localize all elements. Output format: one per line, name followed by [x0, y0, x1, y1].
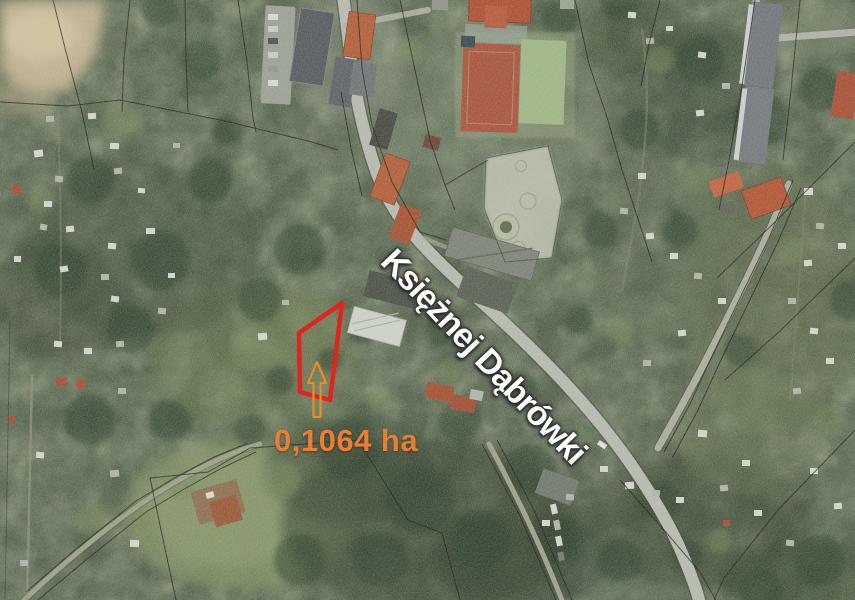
parcel-area-label: 0,1064 ha [274, 423, 418, 459]
aerial-map-viewport[interactable]: Księżnej Dąbrówki 0,1064 ha [0, 0, 855, 600]
